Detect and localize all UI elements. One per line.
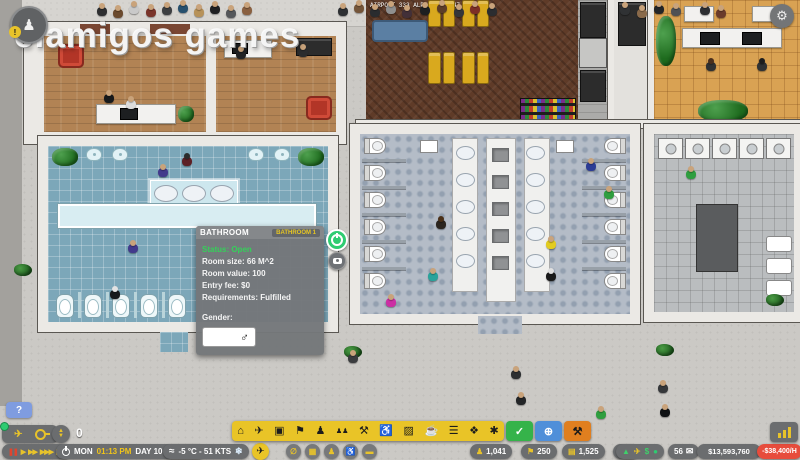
person[interactable]	[436, 216, 446, 229]
wind-icon: ≈	[169, 446, 175, 457]
mail-count: 56	[674, 447, 683, 456]
person[interactable]	[386, 1, 396, 14]
person[interactable]	[604, 186, 614, 199]
flights-icon[interactable]: ✈	[254, 426, 263, 437]
speed-3x-button[interactable]: ▶▶▶	[40, 448, 53, 456]
settings-button[interactable]: ⚙	[770, 4, 794, 28]
plane-status-icon: ✈	[634, 447, 641, 456]
watermark: elamigos games	[14, 16, 300, 56]
room-power-button[interactable]	[326, 229, 348, 251]
passengers-icon: ♟	[476, 447, 483, 456]
room-value: Room value: 100	[202, 268, 318, 280]
snowflake-icon[interactable]: ❄	[235, 446, 243, 457]
inspect-button[interactable]: ✓	[506, 421, 533, 441]
staff-count-value: 250	[537, 447, 550, 456]
gate-stepper[interactable]: ▲ ▼	[52, 425, 70, 443]
airplane-icon: ✈	[256, 446, 264, 457]
person[interactable]	[700, 2, 710, 15]
bush	[656, 344, 674, 356]
quick-buttons: ∅▦♟♿▬	[286, 444, 386, 459]
person[interactable]	[210, 1, 220, 14]
person[interactable]	[586, 158, 596, 171]
bush	[14, 264, 32, 276]
terminal-icon[interactable]: ⌂	[237, 426, 244, 437]
grid-view-button[interactable]: ⊕	[535, 421, 562, 441]
indicators-pill: ▲✈$●	[616, 444, 664, 459]
room-size: Room size: 66 M^2	[202, 256, 318, 268]
person[interactable]	[487, 3, 497, 16]
shops-icon[interactable]: ❖	[469, 426, 479, 437]
staff-icon[interactable]: ♟	[315, 426, 325, 437]
cash-rate-pill[interactable]: -$38,400/H	[757, 444, 800, 459]
key-tool-icon[interactable]	[35, 429, 46, 440]
bush	[766, 294, 784, 306]
airport-map[interactable]: AIRPORT 333 ALPHA 33.7-47	[0, 0, 800, 460]
person[interactable]	[158, 164, 168, 177]
power-icon	[62, 448, 70, 456]
person[interactable]	[128, 240, 138, 253]
balance-value: $13,593,760	[708, 447, 750, 456]
queues-icon[interactable]: ♟♟	[336, 428, 349, 435]
grid-button[interactable]: ▦	[305, 444, 320, 459]
ok-dot-icon: ●	[653, 447, 658, 456]
person[interactable]	[637, 5, 647, 18]
status-dot	[0, 422, 9, 431]
person[interactable]	[97, 3, 107, 16]
person[interactable]	[386, 294, 396, 307]
person[interactable]	[671, 3, 681, 16]
revenue-icon: $	[645, 447, 649, 456]
mail-pill[interactable]: 56 ✉	[668, 444, 699, 459]
person[interactable]	[716, 5, 726, 18]
passengers-pill[interactable]: ♟1,041	[470, 444, 512, 459]
person[interactable]	[402, 5, 412, 18]
person[interactable]	[110, 286, 120, 299]
person[interactable]	[338, 3, 348, 16]
person[interactable]	[686, 166, 696, 179]
clock-day: MON	[74, 447, 93, 456]
person[interactable]	[348, 350, 358, 363]
person[interactable]	[511, 366, 521, 379]
person[interactable]	[706, 58, 716, 71]
room-badge[interactable]: BATHROOM 1	[272, 229, 320, 237]
bar-chart-icon	[778, 433, 781, 438]
gender-toggle-button[interactable]: ♂	[202, 327, 256, 347]
facilities-icon[interactable]: ▨	[404, 426, 414, 437]
play-button[interactable]: ▶	[21, 448, 25, 456]
check-in-icon[interactable]: ⚑	[295, 426, 305, 437]
game-viewport[interactable]: AIRPORT 333 ALPHA 33.7-47	[0, 0, 800, 460]
person[interactable]	[370, 4, 380, 17]
camera-icon	[333, 258, 342, 264]
person[interactable]	[354, 0, 364, 13]
help-button[interactable]: ?	[6, 402, 32, 418]
person[interactable]	[470, 1, 480, 14]
stepper-value: 0	[76, 426, 83, 440]
person[interactable]	[454, 4, 464, 17]
filters-button[interactable]: ▬	[362, 444, 377, 459]
pax-view-button[interactable]: ♿	[343, 444, 358, 459]
balance-pill[interactable]: $13,593,760	[697, 444, 761, 459]
person[interactable]	[126, 96, 136, 109]
room-camera-button[interactable]	[328, 252, 346, 270]
benches-icon[interactable]: ☰	[449, 426, 459, 437]
person[interactable]	[420, 2, 430, 15]
notification-bubble[interactable]: ♟ !	[10, 6, 48, 44]
person[interactable]	[182, 153, 192, 166]
bags-icon: ▤	[568, 447, 576, 456]
person[interactable]	[437, 0, 447, 13]
panel-title: BATHROOM	[200, 228, 249, 237]
chevron-down-icon[interactable]: ▼	[58, 434, 64, 439]
person[interactable]	[660, 404, 670, 417]
bags-pill[interactable]: ▤1,525	[562, 444, 605, 459]
clock-time: 01:13 PM	[97, 447, 132, 456]
person[interactable]	[596, 406, 606, 419]
requirements: Requirements: Fulfilled	[202, 292, 318, 304]
male-icon: ♂	[240, 331, 249, 343]
trend-up-icon: ▲	[622, 447, 630, 456]
person[interactable]	[178, 0, 188, 13]
entry-fee: Entry fee: $0	[202, 280, 318, 292]
speed-2x-button[interactable]: ▶▶	[28, 448, 37, 456]
zones-button[interactable]: ∅	[286, 444, 301, 459]
person[interactable]	[757, 58, 767, 71]
bulldoze-button[interactable]: ⚒	[564, 421, 591, 441]
food-icon[interactable]: ☕	[424, 426, 438, 437]
panel-header[interactable]: BATHROOM BATHROOM 1	[196, 226, 324, 239]
person[interactable]	[162, 2, 172, 15]
passengers-value: 1,041	[486, 447, 506, 456]
room-info-panel: BATHROOM BATHROOM 1 Status: Open Room si…	[196, 226, 324, 355]
staff-count-icon: ⚑	[527, 447, 534, 456]
airplane-mode-button[interactable]: ✈	[252, 443, 269, 460]
mail-icon: ✉	[686, 446, 694, 457]
decorations-icon[interactable]: ✱	[489, 426, 498, 437]
cash-rate-value: -$38,400/H	[762, 448, 797, 455]
bags-value: 1,525	[579, 447, 599, 456]
person-icon: ♟	[22, 16, 35, 34]
weather-pill: ≈ -5 °C - 51 KTS ❄	[163, 444, 249, 459]
person[interactable]	[654, 1, 664, 14]
weather-text: -5 °C - 51 KTS	[179, 447, 232, 456]
build-toolbar: ⌂✈▣⚑♟♟♟⚒♿▨☕☰❖✱	[232, 421, 504, 441]
staff-view-button[interactable]: ♟	[324, 444, 339, 459]
person[interactable]	[620, 2, 630, 15]
seating-icon[interactable]: ♿	[379, 426, 393, 437]
power-icon	[331, 234, 343, 246]
plane-tool-icon[interactable]: ✈	[14, 429, 22, 440]
transit-icon[interactable]: ▣	[274, 426, 284, 437]
alert-icon: !	[9, 26, 21, 38]
person[interactable]	[546, 268, 556, 281]
room-status: Status: Open	[202, 244, 318, 256]
pause-button[interactable]: ❚❚	[8, 448, 18, 456]
person[interactable]	[516, 392, 526, 405]
services-icon[interactable]: ⚒	[359, 426, 369, 437]
person[interactable]	[428, 268, 438, 281]
gear-icon: ⚙	[776, 8, 788, 24]
person[interactable]	[104, 90, 114, 103]
person[interactable]	[129, 1, 139, 14]
person[interactable]	[242, 2, 252, 15]
tools-pill: ✈	[2, 425, 58, 443]
person[interactable]	[546, 236, 556, 249]
person[interactable]	[658, 380, 668, 393]
finance-chart-button[interactable]	[770, 422, 798, 442]
staff-count-pill[interactable]: ⚑250	[521, 444, 557, 459]
gender-label: Gender:	[202, 312, 318, 324]
